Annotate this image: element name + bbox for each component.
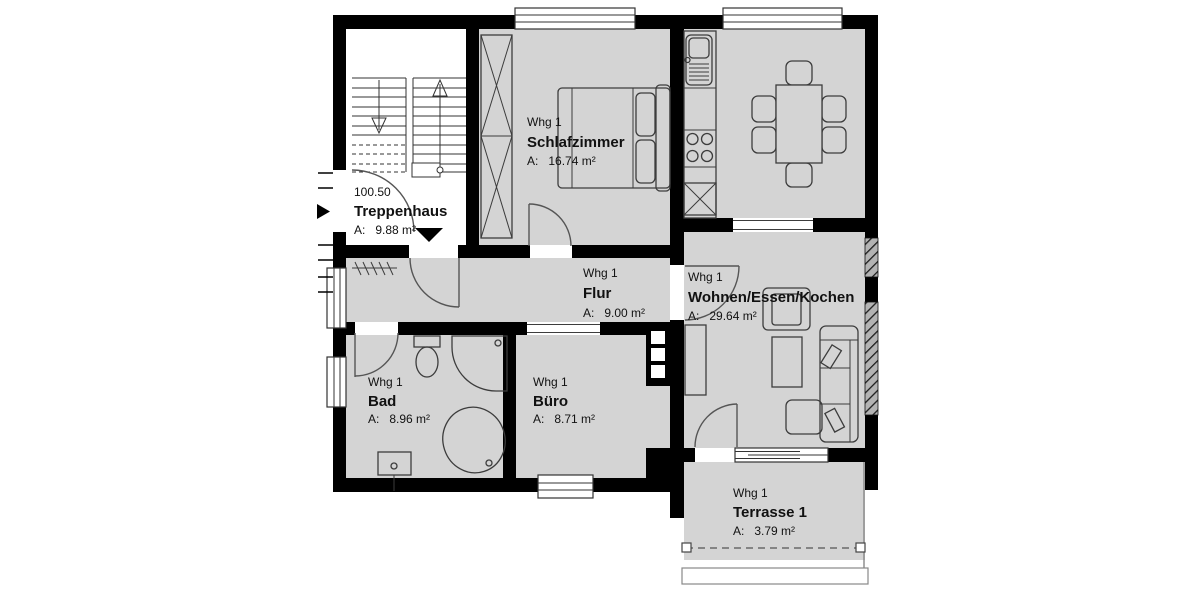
treppenhaus-level: 100.50	[354, 185, 391, 199]
hatched-wall-segments	[865, 238, 878, 415]
floor-plan: 100.50 Treppenhaus A: 9.88 m² Whg 1 Schl…	[0, 0, 1200, 600]
stair-newel	[412, 163, 440, 177]
dining-table	[776, 85, 822, 163]
wohnen-unit: Whg 1	[688, 270, 723, 284]
wohnen-name: Wohnen/Essen/Kochen	[688, 289, 854, 306]
opening-schlafzimmer-door	[530, 245, 572, 258]
terrace-post	[682, 543, 691, 552]
hatch-segment-lower	[865, 302, 878, 415]
wall-right-corner	[865, 448, 878, 490]
terrasse-name: Terrasse 1	[733, 504, 807, 521]
terrasse-unit: Whg 1	[733, 486, 768, 500]
opening-entry	[333, 170, 346, 232]
flur-unit: Whg 1	[583, 266, 618, 280]
bad-area: A: 8.96 m²	[368, 412, 430, 426]
buero-unit: Whg 1	[533, 375, 568, 389]
wall-flur-top	[346, 245, 670, 258]
treppenhaus-area: A: 9.88 m²	[354, 223, 416, 237]
window-kueche	[723, 8, 842, 29]
opening-wohnen-door	[670, 265, 684, 320]
kitchen-counter	[684, 31, 716, 218]
shaft-vents	[651, 331, 665, 378]
window-bad	[327, 357, 346, 407]
dining-chair	[786, 61, 812, 85]
wall-buero-corner	[646, 448, 684, 478]
schlafzimmer-unit: Whg 1	[527, 115, 562, 129]
flur-name: Flur	[583, 285, 611, 302]
dining-chair	[822, 127, 846, 153]
schlafzimmer-area: A: 16.74 m²	[527, 154, 596, 168]
dining-chair	[822, 96, 846, 122]
flur-area: A: 9.00 m²	[583, 306, 645, 320]
bad-unit: Whg 1	[368, 375, 403, 389]
wall-trepp-schlaf	[466, 15, 479, 258]
hatch-segment-upper	[865, 238, 878, 277]
dining-chair	[786, 163, 812, 187]
floor-plan-page: 100.50 Treppenhaus A: 9.88 m² Whg 1 Schl…	[0, 0, 1200, 600]
wall-left	[333, 15, 346, 492]
wall-flur-wohnen	[670, 232, 684, 448]
wall-bad-buero	[503, 335, 516, 478]
terrace-post	[856, 543, 865, 552]
window-schlafzimmer	[515, 8, 635, 29]
opening-terrasse-door	[695, 448, 737, 462]
terrasse-area: A: 3.79 m²	[733, 524, 795, 538]
dining-chair	[752, 127, 776, 153]
bad-name: Bad	[368, 393, 396, 410]
opening-bad-door	[355, 322, 398, 335]
terrace-step	[682, 568, 868, 584]
buero-area: A: 8.71 m²	[533, 412, 595, 426]
window-terrasse-sliding	[735, 448, 828, 462]
entrance-arrow-icon	[317, 204, 330, 219]
window-buero	[538, 475, 593, 498]
opening-apartment-door	[409, 245, 458, 258]
wall-schlaf-kueche	[670, 15, 684, 232]
opening-buero-door	[527, 322, 600, 335]
dining-chair	[752, 96, 776, 122]
wohnen-area: A: 29.64 m²	[688, 309, 757, 323]
wall-bottom	[333, 478, 684, 492]
treppenhaus-name: Treppenhaus	[354, 203, 447, 220]
schlafzimmer-name: Schlafzimmer	[527, 134, 625, 151]
buero-name: Büro	[533, 393, 568, 410]
